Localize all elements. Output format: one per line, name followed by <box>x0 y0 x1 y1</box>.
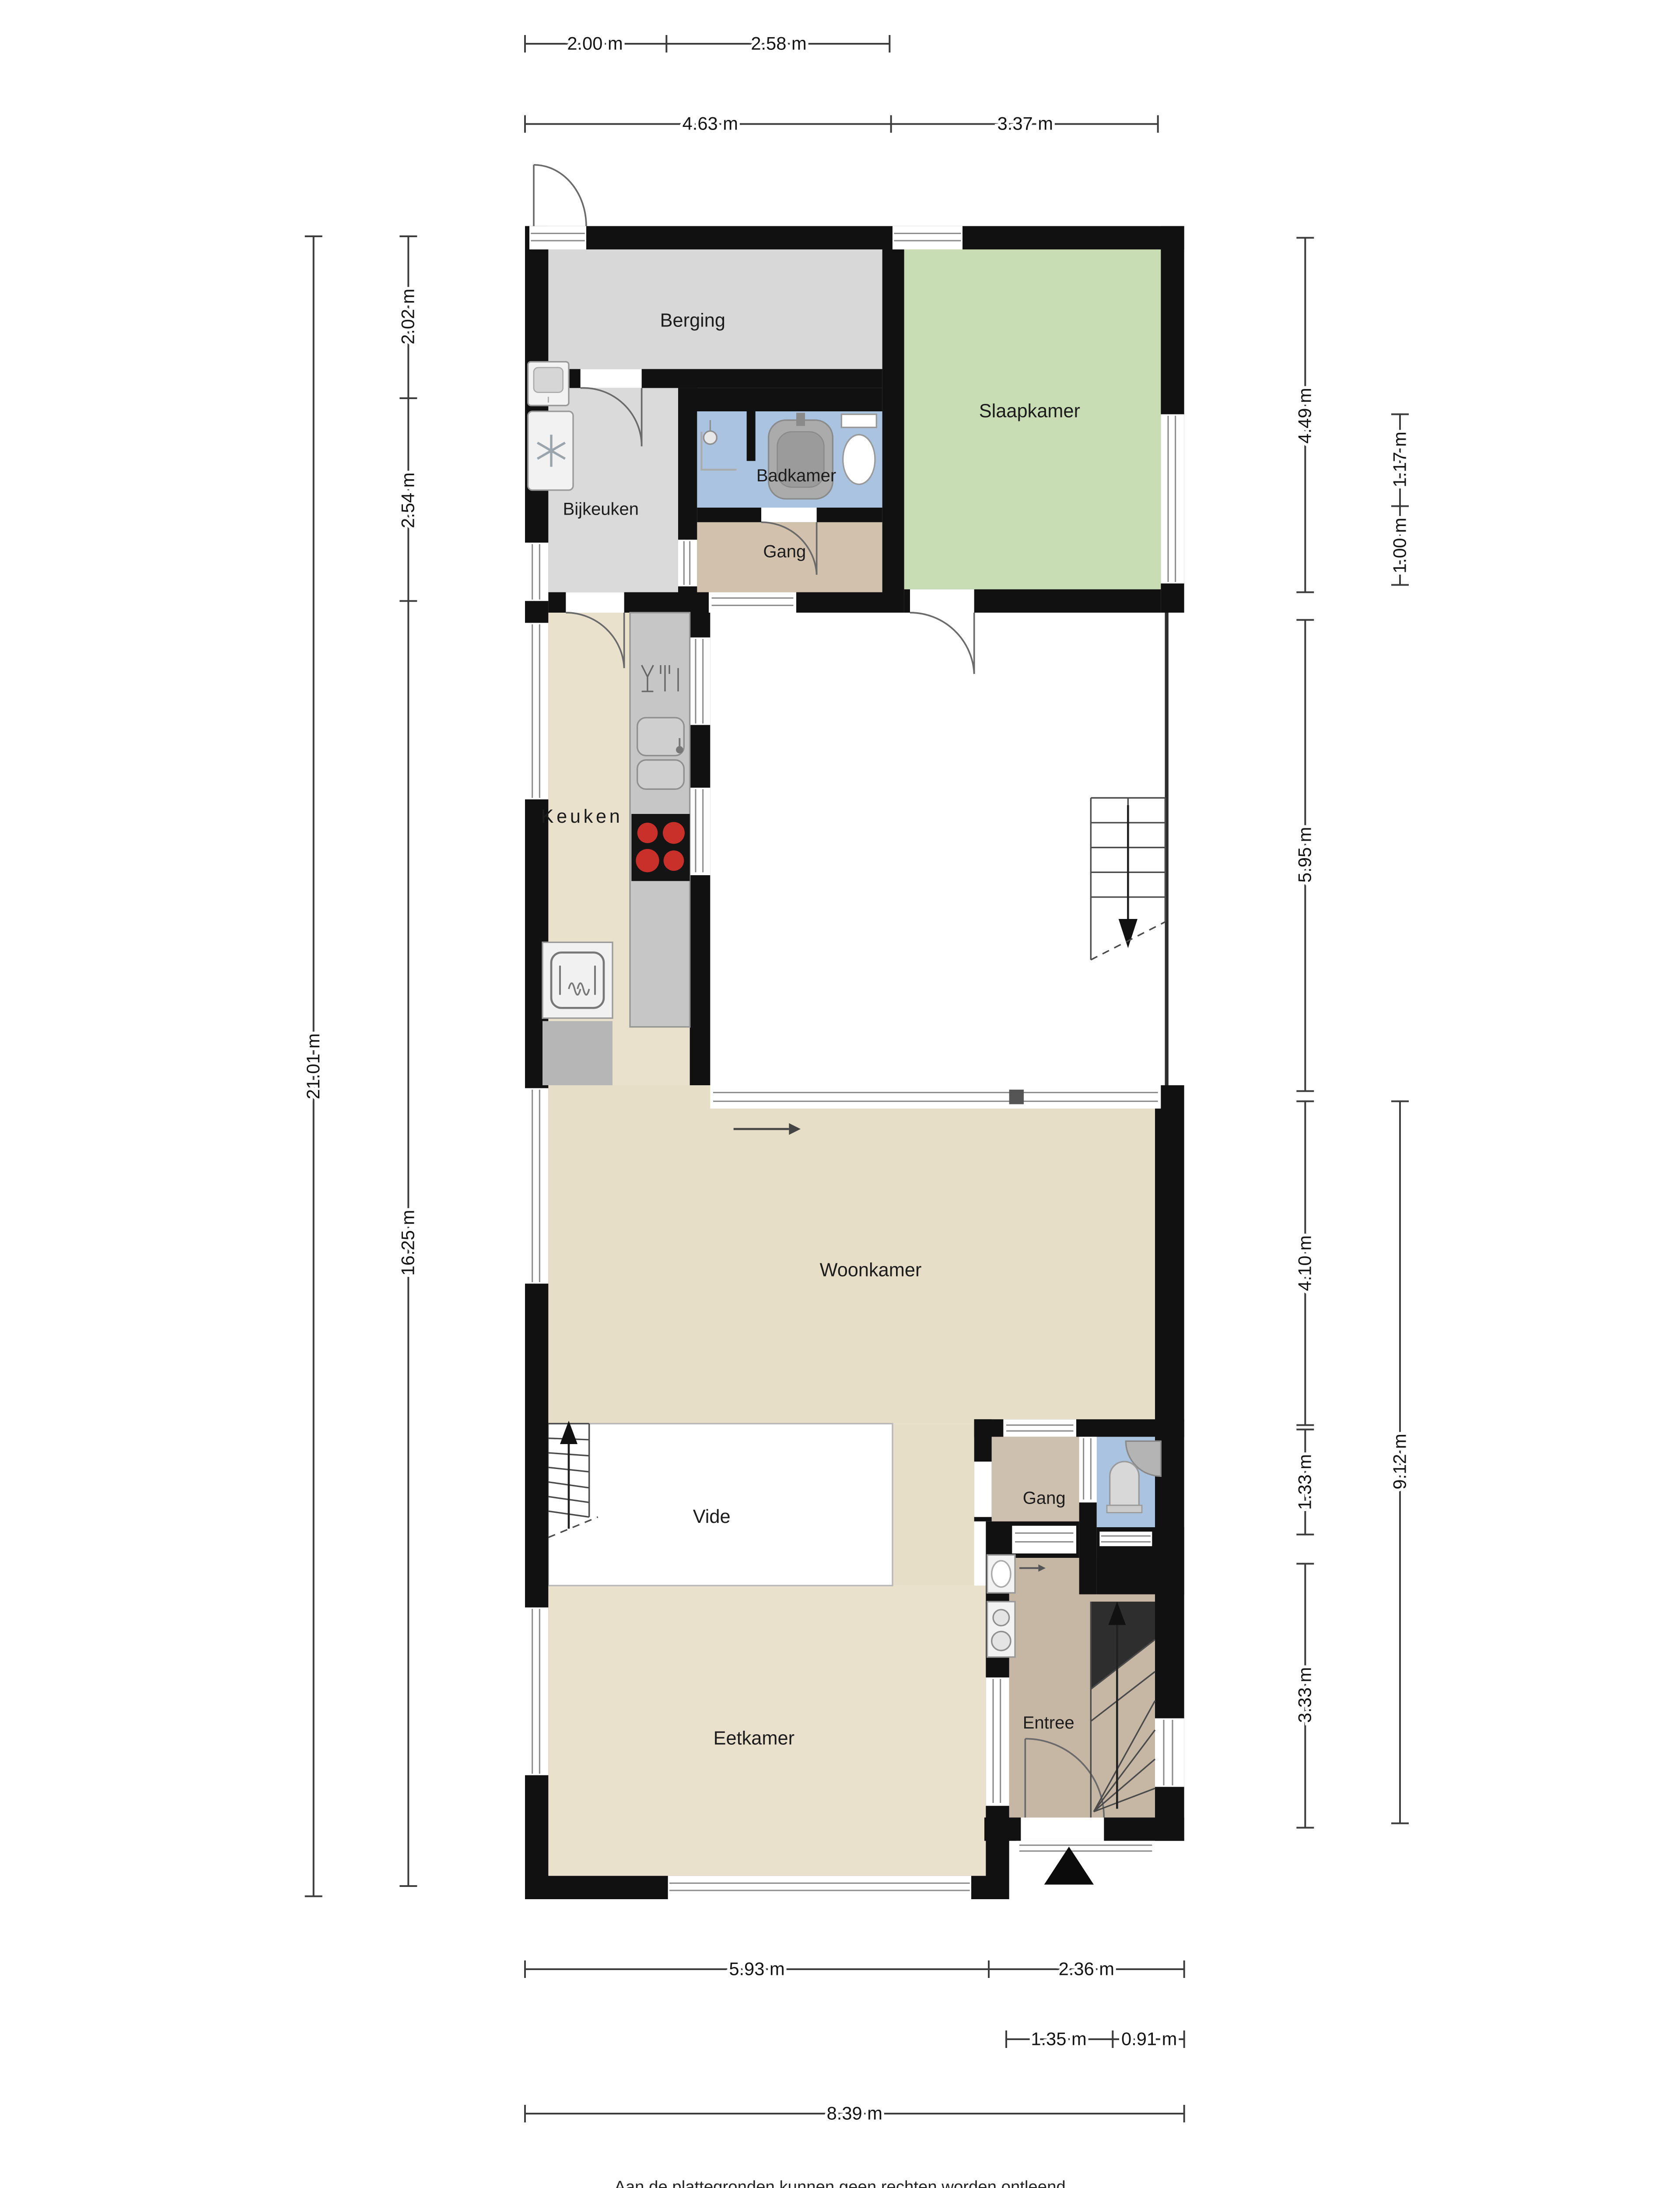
gang-entree-opening <box>1012 1526 1076 1553</box>
label-gang-beneden: Gang <box>1023 1489 1066 1508</box>
eetkamer-bottom-window <box>668 1876 971 1899</box>
dim-right-inner-2: 5.95 m <box>1295 827 1315 883</box>
berging-entrance-opening <box>529 226 586 249</box>
dim-bottom-2a: 1.35 m <box>1031 2028 1086 2049</box>
porch-sill <box>1016 1841 1155 1855</box>
floor-berging <box>548 249 882 369</box>
floorplan-svg: Berging Slaapkamer Bijkeuken Badkamer Ga… <box>0 0 1680 2188</box>
washbasin-icon <box>769 413 833 499</box>
toilet-bottom-window <box>1099 1532 1152 1546</box>
kitchen-sink-icon <box>637 718 684 789</box>
dim-right-outer-1: 1.17 m <box>1389 431 1410 487</box>
dim-right-outer-3: 9.12 m <box>1389 1434 1410 1489</box>
label-bijkeuken: Bijkeuken <box>563 500 639 519</box>
label-vide: Vide <box>693 1506 731 1527</box>
dim-right-inner-5: 3.33 m <box>1295 1667 1315 1723</box>
freezer-icon <box>528 411 573 490</box>
bijkeuken-gang-opening <box>678 540 697 586</box>
slaapkamer-top-window <box>892 226 962 249</box>
woonkamer-gang-opening <box>1003 1419 1076 1437</box>
floor-open-room <box>710 613 1161 1085</box>
label-keuken: Keuken <box>541 806 623 827</box>
washing-machine-icon <box>528 362 569 406</box>
floor-entree <box>1009 1558 1161 1817</box>
meter-cabinet-icon <box>987 1602 1015 1657</box>
fountain-sink-icon <box>987 1555 1015 1593</box>
bijkeuken-window <box>525 543 548 601</box>
dim-right-inner-1: 4.49 m <box>1295 388 1315 443</box>
dim-top-1a: 2.00 m <box>567 33 623 53</box>
front-door-opening <box>1021 1817 1104 1841</box>
woonkamer-window <box>525 1088 548 1284</box>
berging-bijkeuken-opening <box>581 369 642 388</box>
entree-sidelight-window <box>986 1677 1009 1806</box>
gang-toilet-glass <box>1079 1437 1097 1502</box>
toilet-icon <box>841 414 876 484</box>
floor-woonkamer <box>548 1085 1155 1424</box>
floors <box>548 249 1161 1876</box>
keuken-glass-panel-2 <box>690 788 710 875</box>
label-badkamer: Badkamer <box>756 466 836 485</box>
footer-disclaimer: Aan de plattegronden kunnen geen rechten… <box>614 2177 1065 2188</box>
berging-entrance-door <box>534 165 586 226</box>
floor-vide <box>548 1424 892 1585</box>
dim-bottom-1b: 2.36 m <box>1059 1958 1114 1979</box>
toilet-icon-2 <box>1107 1462 1142 1513</box>
dim-right-outer-2: 1.00 m <box>1389 518 1410 573</box>
dim-top-2b: 3.37 m <box>997 113 1053 134</box>
label-slaapkamer: Slaapkamer <box>979 400 1080 421</box>
sliding-door-track <box>710 1085 1161 1108</box>
keuken-window <box>525 623 548 799</box>
wall-badkamer-top <box>678 388 882 411</box>
floor-gang-beneden <box>992 1437 1079 1521</box>
wall-badkamer-stub <box>747 411 756 461</box>
dim-left-inner-2: 2.54 m <box>398 473 418 528</box>
gang-vide-opening <box>974 1462 992 1517</box>
floorplan-page: Berging Slaapkamer Bijkeuken Badkamer Ga… <box>0 0 1680 2188</box>
dim-right-inner-3: 4.10 m <box>1295 1235 1315 1291</box>
dim-right-inner-4: 1.33 m <box>1295 1454 1315 1510</box>
dim-bottom-total: 8.39 m <box>827 2103 882 2123</box>
dim-left-outer: 21.01 m <box>303 1033 323 1099</box>
eetkamer-left-window <box>525 1607 548 1775</box>
dim-bottom-1a: 5.93 m <box>729 1958 784 1979</box>
label-woonkamer: Woonkamer <box>820 1260 922 1281</box>
dim-top-2a: 4.63 m <box>682 113 738 134</box>
dim-left-inner-1: 2.02 m <box>398 289 418 344</box>
entree-right-window <box>1155 1718 1184 1787</box>
bijkeuken-keuken-opening <box>566 592 624 613</box>
wall-berging-slaapkamer <box>882 249 904 613</box>
label-eetkamer: Eetkamer <box>714 1728 794 1749</box>
slaapkamer-right-window <box>1161 414 1184 584</box>
wall-top <box>525 226 1184 249</box>
footer: Aan de plattegronden kunnen geen rechten… <box>614 2177 1065 2188</box>
dim-bottom-2b: 0.91 m <box>1121 2028 1177 2049</box>
gang-open-room-opening <box>709 592 796 613</box>
floor-connector <box>892 1424 974 1585</box>
keuken-glass-panel-1 <box>690 638 710 725</box>
label-entree: Entree <box>1023 1713 1074 1732</box>
wall-gang-toilet-lower <box>1079 1502 1097 1594</box>
badkamer-door-opening <box>761 508 817 522</box>
slaapkamer-door-opening <box>910 589 974 613</box>
oven-icon <box>542 942 612 1085</box>
dim-top-1b: 2.58 m <box>751 33 806 53</box>
label-gang-boven: Gang <box>763 542 806 561</box>
cooktop-icon <box>631 814 689 881</box>
dim-left-inner-3: 16.25 m <box>398 1210 418 1276</box>
label-berging: Berging <box>660 310 725 331</box>
